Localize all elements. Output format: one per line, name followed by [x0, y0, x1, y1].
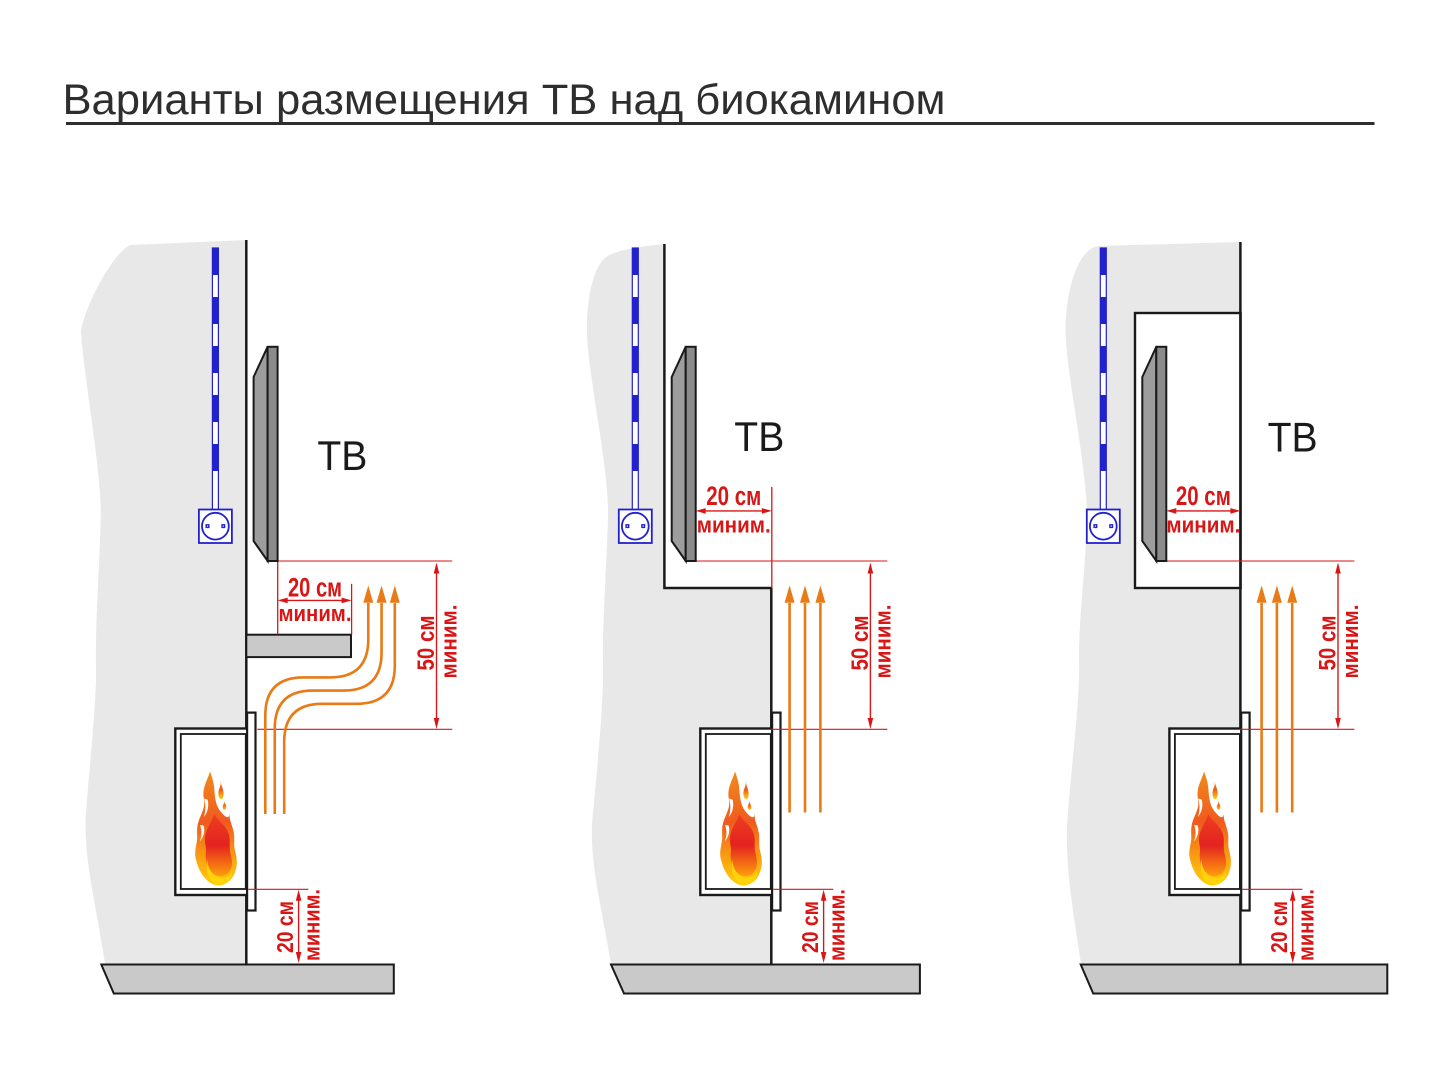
- svg-text:20 см: 20 см: [797, 901, 823, 953]
- svg-text:миним.: миним.: [697, 513, 771, 538]
- svg-text:ТВ: ТВ: [317, 432, 367, 479]
- svg-text:миним.: миним.: [1294, 889, 1319, 961]
- svg-text:миним.: миним.: [1166, 513, 1240, 538]
- svg-text:20 см: 20 см: [706, 481, 761, 511]
- svg-text:20 см: 20 см: [1176, 481, 1231, 511]
- svg-text:миним.: миним.: [437, 605, 462, 679]
- svg-text:миним.: миним.: [300, 889, 325, 961]
- svg-text:20 см: 20 см: [288, 572, 342, 602]
- svg-text:20 см: 20 см: [1266, 901, 1292, 953]
- svg-text:миним.: миним.: [825, 889, 850, 961]
- svg-text:20 см: 20 см: [272, 901, 298, 953]
- svg-text:ТВ: ТВ: [734, 413, 784, 460]
- svg-text:миним.: миним.: [1338, 605, 1363, 679]
- svg-text:ТВ: ТВ: [1268, 414, 1318, 461]
- svg-text:миним.: миним.: [279, 601, 352, 626]
- svg-text:миним.: миним.: [870, 605, 895, 679]
- svg-text:Варианты размещения ТВ над био: Варианты размещения ТВ над биокамином: [63, 76, 946, 124]
